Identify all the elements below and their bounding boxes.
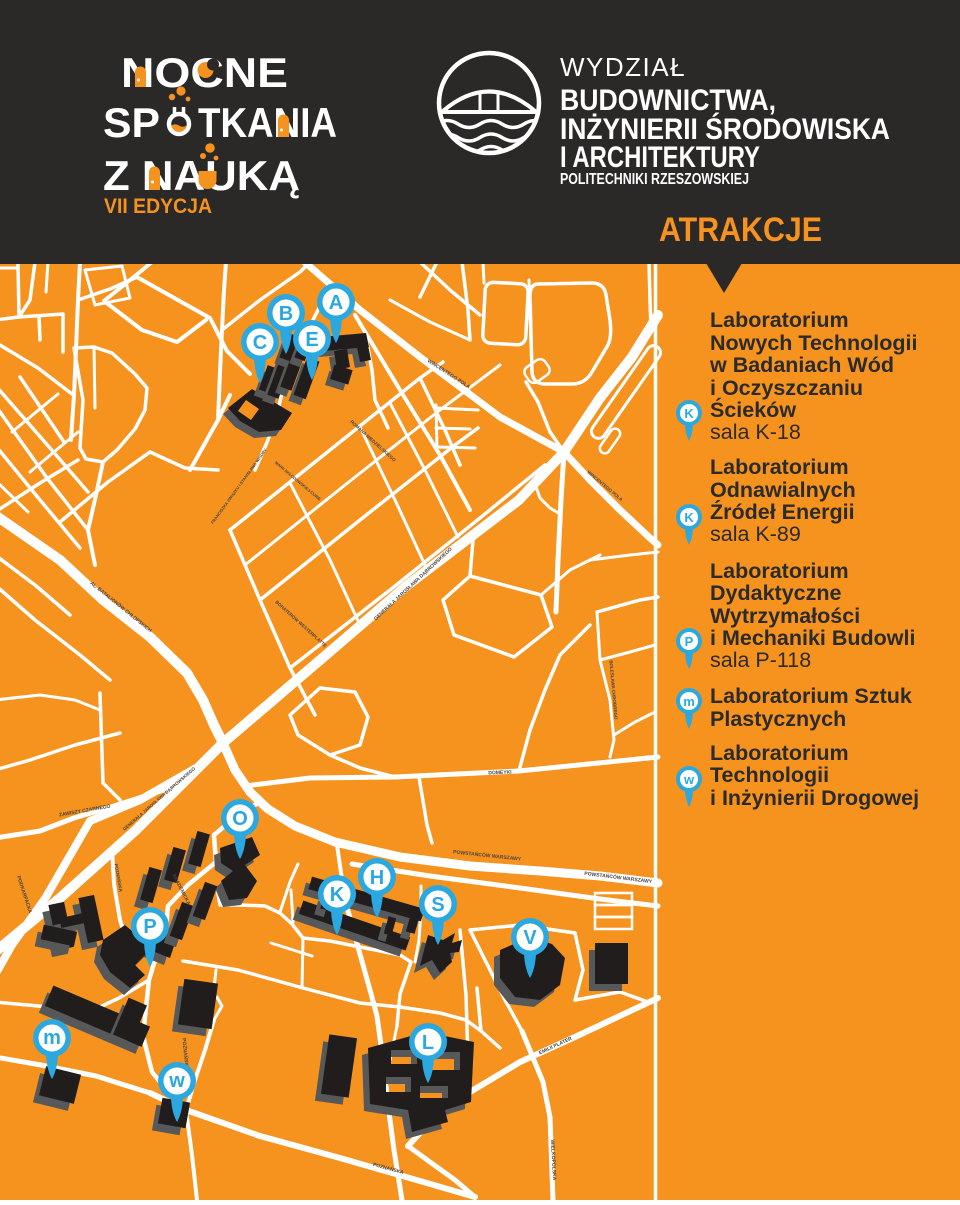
svg-text:w Badaniach Wód: w Badaniach Wód (709, 353, 894, 377)
svg-text:sala K-89: sala K-89 (710, 522, 801, 546)
svg-text:L: L (422, 1032, 434, 1054)
svg-text:Technologii: Technologii (710, 763, 829, 787)
svg-text:m: m (43, 1027, 61, 1049)
svg-text:S: S (431, 894, 444, 916)
svg-text:sala P-118: sala P-118 (710, 648, 811, 672)
svg-text:K: K (684, 406, 694, 421)
svg-text:K: K (330, 884, 345, 906)
svg-text:C: C (253, 332, 267, 354)
svg-text:Dydaktyczne: Dydaktyczne (710, 581, 841, 605)
svg-text:B: B (279, 303, 293, 325)
svg-text:O: O (232, 808, 248, 830)
svg-text:WYDZIAŁ: WYDZIAŁ (560, 52, 686, 82)
svg-text:POLITECHNIKI RZESZOWSKIEJ: POLITECHNIKI RZESZOWSKIEJ (560, 171, 749, 188)
svg-text:TKANIA: TKANIA (198, 99, 337, 146)
svg-text:m: m (683, 694, 695, 709)
svg-text:Laboratorium: Laboratorium (710, 559, 849, 583)
svg-text:ATRAKCJE: ATRAKCJE (659, 211, 822, 249)
svg-text:Ścieków: Ścieków (710, 397, 796, 422)
svg-text:Laboratorium Sztuk: Laboratorium Sztuk (710, 684, 912, 708)
svg-text:P: P (685, 634, 694, 649)
svg-text:Źródeł Energii: Źródeł Energii (710, 499, 855, 524)
svg-text:Nowych Technologii: Nowych Technologii (710, 331, 917, 355)
svg-text:Wytrzymałości: Wytrzymałości (710, 604, 860, 628)
svg-text:Laboratorium: Laboratorium (710, 455, 849, 479)
svg-text:H: H (370, 867, 384, 889)
svg-text:Laboratorium: Laboratorium (710, 741, 849, 765)
svg-text:VII EDYCJA: VII EDYCJA (104, 195, 212, 218)
svg-text:V: V (523, 927, 537, 949)
svg-text:Laboratorium: Laboratorium (710, 308, 849, 332)
svg-text:I ARCHITEKTURY: I ARCHITEKTURY (560, 141, 760, 174)
svg-text:DOMEYKI: DOMEYKI (488, 770, 512, 777)
svg-text:Plastycznych: Plastycznych (710, 707, 846, 731)
svg-text:sala K-18: sala K-18 (710, 420, 801, 444)
svg-text:Odnawialnych: Odnawialnych (710, 478, 856, 502)
svg-text:A: A (329, 292, 343, 314)
svg-text:K: K (684, 510, 694, 525)
svg-text:P: P (143, 916, 156, 938)
svg-text:E: E (305, 329, 318, 351)
svg-text:i Oczyszczaniu: i Oczyszczaniu (710, 376, 863, 400)
svg-text:w: w (168, 1070, 185, 1092)
svg-text:SP: SP (103, 99, 160, 146)
svg-text:i Inżynierii Drogowej: i Inżynierii Drogowej (710, 786, 919, 810)
svg-text:i Mechaniki Budowli: i Mechaniki Budowli (710, 626, 915, 650)
svg-text:w: w (683, 772, 695, 787)
